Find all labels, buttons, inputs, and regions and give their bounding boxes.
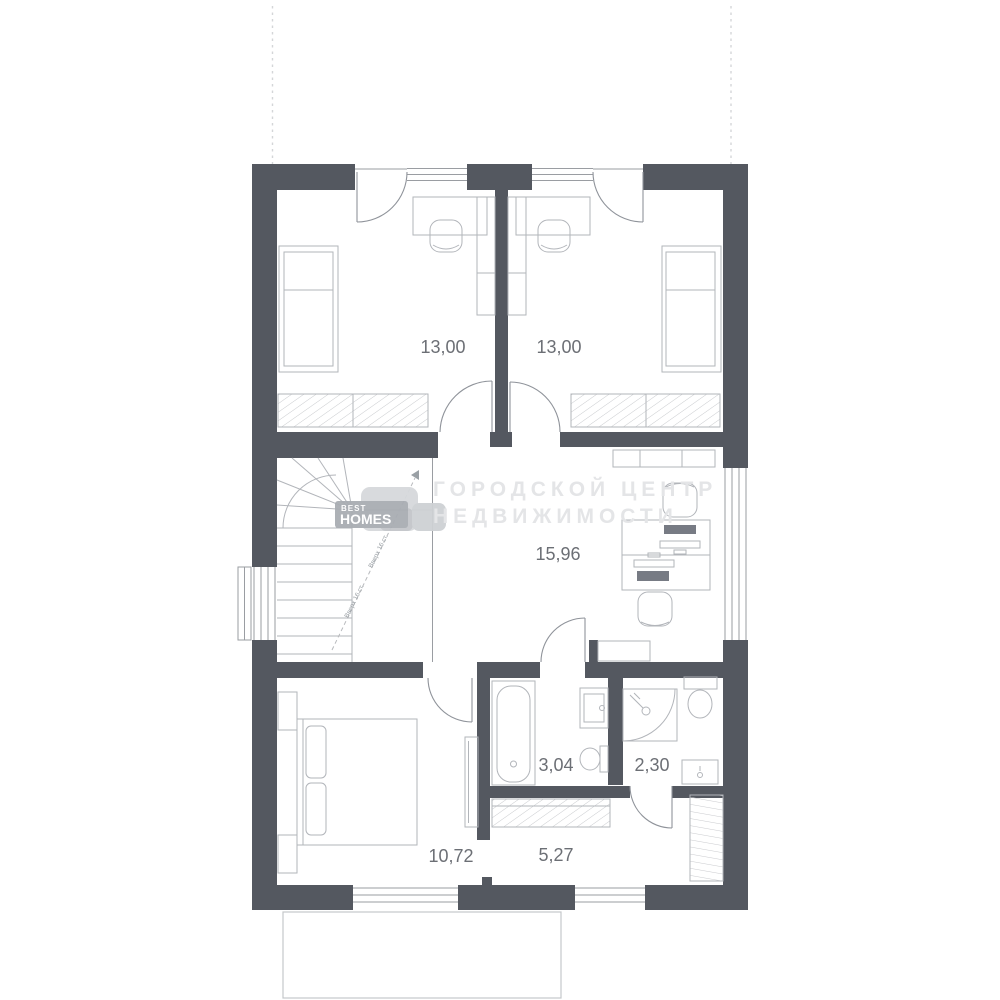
wardrobe bbox=[278, 394, 428, 427]
watermark-line-2: НЕДВИЖИМОСТИ bbox=[433, 505, 678, 528]
window-bottom-left bbox=[353, 888, 458, 902]
roof-projection-lines bbox=[273, 6, 732, 164]
shower bbox=[623, 689, 677, 741]
door-bedroom-bottom bbox=[428, 678, 472, 722]
bathtub bbox=[492, 681, 535, 785]
porch-outline bbox=[283, 912, 561, 998]
desk-chair bbox=[430, 220, 462, 252]
desk-chair bbox=[638, 592, 672, 626]
keyboard bbox=[637, 571, 669, 581]
wardrobe bbox=[571, 394, 720, 427]
pillow bbox=[306, 783, 326, 835]
floor-plan-page: Вверх 16 ст. Вверх 16 ст. bbox=[0, 0, 1000, 1000]
window-top-right bbox=[532, 169, 593, 181]
desk bbox=[413, 197, 495, 315]
room-label-wc: 2,30 bbox=[634, 755, 669, 775]
room-label-corridor: 5,27 bbox=[538, 845, 573, 865]
monitor bbox=[634, 560, 674, 567]
room-label-bedroom-top-right: 13,00 bbox=[536, 337, 581, 357]
room-label-bedroom-top-left: 13,00 bbox=[420, 337, 465, 357]
nightstand bbox=[278, 835, 297, 873]
wardrobe bbox=[492, 799, 610, 827]
sink bbox=[580, 688, 608, 728]
room-label-bathroom: 3,04 bbox=[538, 755, 573, 775]
room-label-hall: 15,96 bbox=[535, 544, 580, 564]
window-top-left bbox=[407, 169, 467, 181]
desk-chair bbox=[538, 220, 570, 252]
door-bathroom bbox=[541, 618, 585, 662]
toilet bbox=[580, 746, 608, 772]
stair-annotation-2: Вверх 16 ст. bbox=[344, 583, 366, 619]
door-bedroom-top-right bbox=[510, 382, 560, 432]
furniture-corridor bbox=[492, 795, 723, 881]
logo-text-homes: HOMES bbox=[340, 511, 391, 527]
window-right bbox=[725, 468, 746, 640]
best-homes-logo: BEST HOMES bbox=[335, 487, 446, 531]
stair-annotation-1: Вверх 16 ст. bbox=[368, 533, 390, 569]
door-bedroom-top-left bbox=[440, 381, 492, 432]
pillow bbox=[306, 726, 326, 778]
double-bed bbox=[297, 719, 417, 845]
sideboard bbox=[598, 641, 650, 661]
window-left bbox=[238, 567, 275, 640]
tall-cabinet bbox=[465, 737, 478, 827]
desk bbox=[508, 197, 590, 315]
monitor bbox=[660, 541, 700, 548]
watermark-line-1: ГОРОДСКОЙ ЦЕНТР bbox=[433, 477, 717, 501]
sink bbox=[682, 760, 718, 784]
floor-plan-drawing: Вверх 16 ст. Вверх 16 ст. bbox=[0, 0, 1000, 1000]
door-wc bbox=[630, 786, 672, 828]
desk bbox=[622, 520, 710, 590]
window-bottom-right bbox=[575, 888, 645, 902]
furniture-bedroom-top-left bbox=[278, 197, 495, 427]
nightstand bbox=[278, 692, 297, 730]
door-balcony-right bbox=[593, 172, 643, 222]
toilet bbox=[684, 677, 717, 718]
watermark: ГОРОДСКОЙ ЦЕНТР НЕДВИЖИМОСТИ bbox=[433, 477, 717, 528]
room-label-bedroom-bottom: 10,72 bbox=[428, 846, 473, 866]
bed bbox=[279, 246, 338, 372]
door-balcony-left bbox=[357, 172, 407, 222]
closet bbox=[690, 795, 723, 881]
cabinet bbox=[613, 450, 715, 467]
bed bbox=[662, 246, 721, 372]
